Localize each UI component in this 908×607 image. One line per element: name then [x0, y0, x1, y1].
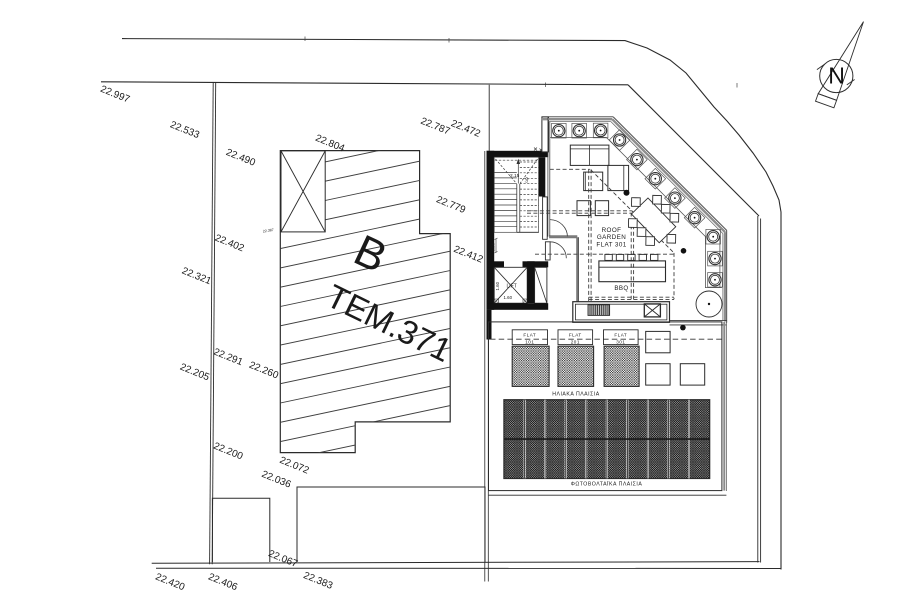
svg-text:FLAT 301: FLAT 301 — [596, 242, 626, 249]
svg-text:1.60: 1.60 — [495, 281, 500, 290]
svg-text:ΗΛΙΑΚΑ ΠΛΑΙΣΙΑ: ΗΛΙΑΚΑ ΠΛΑΙΣΙΑ — [552, 391, 599, 397]
svg-text:FLAT: FLAT — [614, 333, 627, 338]
svg-text:ΦΩΤΟΒΟΛΤΑΪΚΑ ΠΛΑΙΣΙΑ: ΦΩΤΟΒΟΛΤΑΪΚΑ ΠΛΑΙΣΙΑ — [571, 480, 643, 487]
svg-text:BBQ: BBQ — [614, 285, 628, 292]
svg-text:ROOF: ROOF — [602, 227, 622, 234]
svg-text:N: N — [828, 63, 845, 89]
svg-text:1.60: 1.60 — [504, 295, 513, 300]
svg-text:2.15: 2.15 — [510, 173, 520, 179]
svg-text:LIFT: LIFT — [507, 284, 517, 290]
svg-text:301: 301 — [616, 339, 625, 344]
svg-text:1.26: 1.26 — [491, 242, 496, 251]
svg-text:GARDEN: GARDEN — [597, 234, 626, 241]
svg-text:FLAT: FLAT — [523, 333, 536, 338]
svg-text:101: 101 — [525, 339, 534, 344]
svg-text:201: 201 — [571, 339, 580, 344]
svg-text:FLAT: FLAT — [569, 333, 582, 338]
